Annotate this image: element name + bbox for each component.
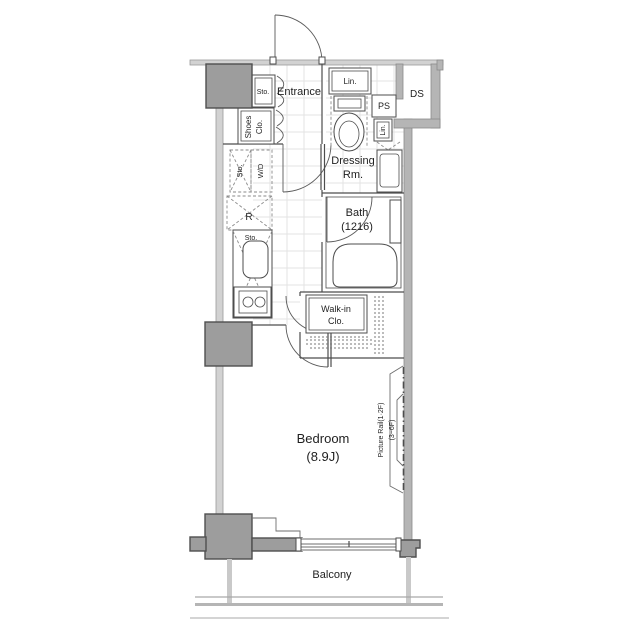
sto-kitchen-label: Sto. (245, 235, 258, 242)
fridge-label: R (245, 212, 252, 223)
balcony-label: Balcony (312, 569, 352, 581)
ds-right-wall (431, 64, 440, 128)
picture-rail-label-1: Picture Rail(1·2F) (378, 403, 385, 458)
column-top-left (206, 64, 252, 108)
sto-entrance-label: Sto. (257, 89, 270, 96)
door-jamb-left (270, 57, 276, 64)
toilet-tank (334, 96, 365, 111)
washbasin (377, 142, 402, 192)
column-bottom-left (205, 514, 252, 559)
picture-rail-label-2: (3~6F) (389, 420, 396, 441)
kitchen-door-arc (283, 145, 331, 192)
shoes-label-2: Clo. (255, 120, 264, 134)
stove (234, 287, 271, 317)
linen-lower-label: Lin. (380, 124, 387, 135)
bath-label-1: Bath (346, 207, 369, 219)
sto-wd-sto-label: Sto. (235, 164, 244, 177)
sto-wd-wd-label: W/D (256, 163, 265, 178)
linen-upper-label: Lin. (344, 77, 357, 86)
dressing-label-2: Rm. (343, 169, 363, 181)
toilet-bowl (334, 113, 364, 151)
right-wall (404, 119, 412, 547)
dressing-sliding-door (321, 144, 325, 190)
dressing-label-1: Dressing (331, 155, 374, 167)
floor-plan-page: Sto. Entrance Lin. PS DS Lin. Shoes Clo.… (0, 0, 640, 640)
entrance-door-arc (275, 15, 322, 62)
bedroom-label-2: (8.9J) (306, 449, 339, 464)
ds-left-stub (396, 64, 403, 99)
ds-label: DS (410, 89, 424, 100)
door-jamb-right (319, 57, 325, 64)
bath-label-2: (1216) (341, 221, 373, 233)
bath-counter (390, 200, 401, 243)
balcony (190, 557, 449, 618)
ds-bottom-wall (394, 119, 440, 128)
entrance-door (270, 15, 325, 64)
balcony-divider-left (227, 559, 232, 605)
walkin-label-1: Walk-in (321, 304, 351, 314)
balcony-divider-right (406, 557, 411, 605)
picture-rail-bracket-inner (397, 394, 403, 466)
floor-plan-svg: Sto. Entrance Lin. PS DS Lin. Shoes Clo.… (0, 0, 640, 640)
entrance-label: Entrance (277, 86, 321, 98)
walkin-label-2: Clo. (328, 316, 344, 326)
kitchen-sink (243, 241, 268, 278)
ps-label: PS (378, 101, 390, 111)
ds-corner-stub (437, 60, 443, 70)
window-jamb-right (396, 538, 401, 551)
bathtub (333, 244, 397, 287)
wall-stub-left (190, 537, 206, 551)
balcony-rail-2 (195, 603, 443, 606)
column-mid-left (205, 322, 252, 366)
window-jamb-left (296, 538, 301, 551)
walkin-box (306, 295, 367, 333)
bottom-wall-segment (252, 538, 302, 551)
shoes-label-1: Shoes (244, 116, 253, 139)
bedroom-step-line (252, 518, 300, 538)
bedroom-label-1: Bedroom (297, 431, 350, 446)
left-wall (216, 64, 223, 541)
